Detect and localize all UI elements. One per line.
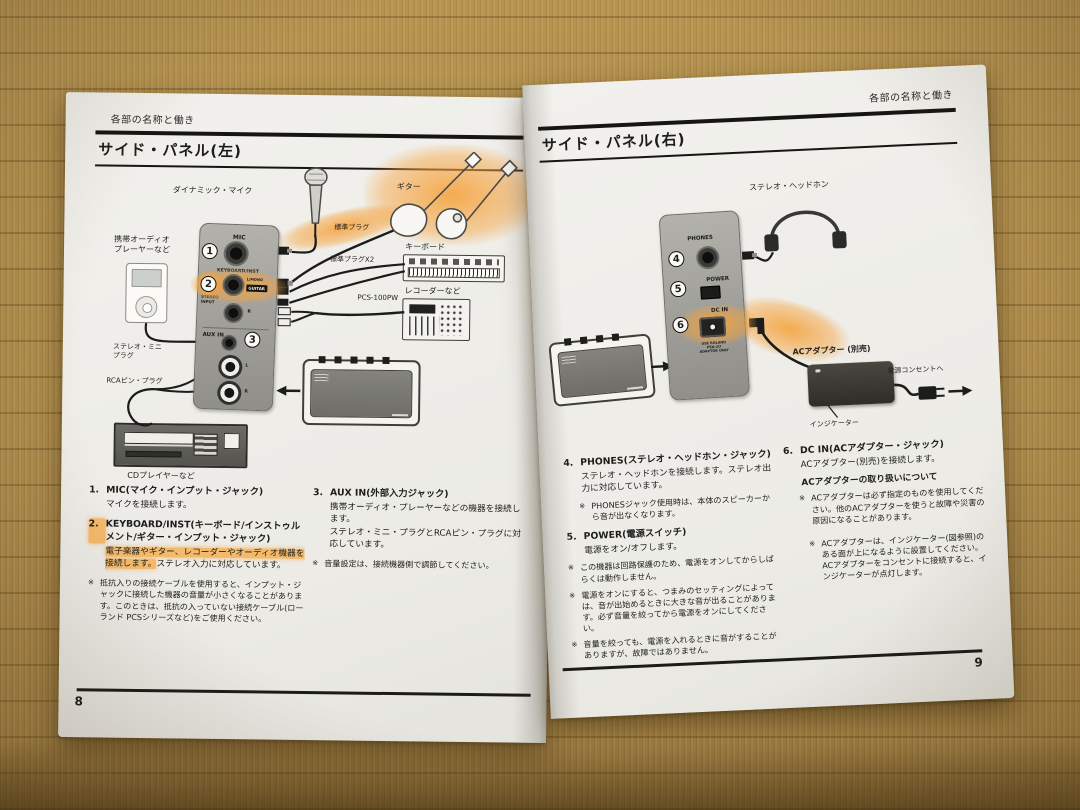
section-3-title: AUX IN(外部入力ジャック)	[330, 487, 525, 502]
left-side-panel-drawing: MIC 1 KEYBOARD/INST 2 L/MONO GUITAR STER…	[193, 223, 280, 412]
section-2-body: ステレオ入力に対応しています。	[156, 559, 285, 571]
page-number-right: 9	[974, 655, 983, 669]
footnote-adapter-2: ※ACアダプターは、インジケーター(図参照)のある面が上になるように設置してくだ…	[809, 531, 989, 584]
power-label: POWER	[694, 275, 742, 284]
guitar-label: ギター	[397, 182, 421, 192]
footnote-text: ACアダプターは、インジケーター(図参照)のある面が上になるように設置してくださ…	[821, 531, 989, 583]
footnote-text: 電源をオンにすると、つまみのセッティングによっては、音が出始めるときに大きな音が…	[581, 581, 783, 635]
guitars-drawing	[379, 151, 535, 241]
footnote-volume: ※ 音量設定は、接続機器側で調節してください。	[312, 558, 524, 572]
mixer-drawing	[402, 298, 471, 341]
aux-rca-jack-r	[217, 380, 242, 405]
footnote-adapter-1: ※ACアダプターは必ず指定のものを使用してください。他のACアダプターを使うと故…	[799, 485, 986, 527]
breadcrumb: 各部の名称と働き	[869, 86, 954, 105]
mixer-faders	[409, 316, 439, 335]
circled-number-1-text: 1	[206, 245, 213, 256]
circled-number-1: 1	[201, 243, 218, 260]
amp-panel-detail	[314, 373, 328, 381]
section-2-title: KEYBOARD/INST(キーボード/インストゥルメント/ギター・インプット・…	[105, 519, 308, 546]
cd-window	[224, 433, 240, 449]
cd-player-drawing	[113, 423, 248, 469]
stereo-mini-plug-label: ステレオ・ミニ プラグ	[113, 343, 162, 361]
footnote-text: 音量を絞っても、電源を入れるときに音がすることがありますが、故障ではありません。	[583, 631, 784, 662]
rca-l-label: L	[245, 364, 248, 369]
aux-mini-jack	[221, 335, 238, 352]
player-click-wheel	[135, 296, 157, 318]
amp-panel-detail	[562, 355, 577, 364]
note-mark-icon: ※	[87, 578, 100, 623]
section-4-number: 4.	[563, 457, 581, 470]
section-aux-in: 3.AUX IN(外部入力ジャック) 携帯オーディオ・プレーヤーなどの機器を接続…	[312, 487, 525, 553]
section-mic: 1.MIC(マイク・インプット・ジャック) マイクを接続します。	[89, 484, 309, 513]
standard-plug-x2-label: 標準プラグX2	[330, 255, 374, 264]
footnote-resistor-cable: ※ 抵抗入りの接続ケーブルを使用すると、インプット・ジャックに接続した機器の音量…	[87, 578, 308, 625]
aux-rca-jack-l	[218, 354, 243, 379]
section-1-number: 1.	[89, 484, 106, 496]
section-power: 5.POWER(電源スイッチ) 電源をオン/オフします。 ※この機器は回路保護の…	[566, 522, 784, 662]
circled-number-4: 4	[668, 251, 685, 268]
cd-buttons	[194, 434, 218, 456]
left-text-column-1: 1.MIC(マイク・インプット・ジャック) マイクを接続します。 2.KEYBO…	[87, 484, 309, 625]
note-mark-icon: ※	[579, 500, 592, 523]
recorder-label: レコーダーなど	[404, 286, 460, 297]
adaptor-only-note: USE ROLAND PSA-1U ADAPTOR ONLY	[692, 340, 737, 355]
section-2-number: 2.	[88, 519, 105, 544]
power-switch	[700, 285, 721, 299]
section-3-number: 3.	[313, 487, 330, 499]
footnote-phones: ※PHONESジャック使用時は、本体のスピーカーから音が出なくなります。	[579, 492, 778, 523]
left-text-column-2: 3.AUX IN(外部入力ジャック) 携帯オーディオ・プレーヤーなどの機器を接続…	[312, 487, 525, 572]
l-mono-label: L/MONO	[247, 278, 263, 283]
keyboard-controls	[409, 258, 499, 265]
note-mark-icon: ※	[568, 563, 581, 586]
dynamic-mic-label: ダイナミック・マイク	[173, 185, 253, 196]
footnote-power-2: ※電源をオンにすると、つまみのセッティングによっては、音が出始めるときに大きな音…	[569, 581, 783, 635]
breadcrumb: 各部の名称と働き	[111, 111, 195, 127]
pcs-cable-label: PCS-100PW	[357, 294, 398, 303]
page-number-left: 8	[74, 694, 83, 708]
note-mark-icon: ※	[312, 558, 324, 569]
section-6-subhead: ACアダプターの取り扱いについて	[801, 467, 984, 488]
right-text-column-2: 6.DC IN(ACアダプター・ジャック) ACアダプター(別売)を接続します。…	[783, 437, 989, 592]
portable-audio-label: 携帯オーディオ プレーヤーなど	[114, 235, 170, 256]
guitar-tag-label: GUITAR	[246, 285, 267, 293]
footnote-text: 抵抗入りの接続ケーブルを使用すると、インプット・ジャックに接続した機器の音量が小…	[99, 578, 308, 625]
cd-player-label: CDプレイヤーなど	[127, 471, 195, 482]
right-side-panel-drawing: PHONES 4 POWER 5 DC IN 6 USE ROLAND PSA-…	[659, 210, 751, 401]
standard-plug-label: 標準プラグ	[334, 223, 369, 232]
footnote-text: ACアダプターは必ず指定のものを使用してください。他のACアダプターを使うと故障…	[811, 485, 986, 526]
section-phones: 4.PHONES(ステレオ・ヘッドホン・ジャック) ステレオ・ヘッドホンを接続し…	[563, 448, 778, 523]
section-keyboard-inst: 2.KEYBOARD/INST(キーボード/インストゥルメント/ギター・インプッ…	[88, 519, 309, 573]
circled-number-5: 5	[670, 281, 687, 298]
outlet-label: 電源コンセントへ	[887, 365, 943, 376]
mixer-knobs	[440, 305, 464, 336]
phones-label: PHONES	[661, 233, 739, 244]
dynamic-microphone-drawing	[300, 167, 331, 229]
amp-logo	[392, 414, 408, 416]
note-mark-icon: ※	[571, 640, 584, 663]
headphones-label: ステレオ・ヘッドホン	[749, 180, 829, 194]
keyboard-inst-jack-r	[223, 303, 244, 324]
cd-display	[126, 451, 182, 458]
keyboard-keys	[408, 267, 500, 278]
section-1-title: MIC(マイク・インプット・ジャック)	[106, 485, 309, 500]
right-text-column-1: 4.PHONES(ステレオ・ヘッドホン・ジャック) ステレオ・ヘッドホンを接続し…	[563, 448, 784, 670]
left-footer-rule	[77, 688, 531, 697]
cd-tray	[124, 432, 194, 445]
circled-number-2-text: 2	[205, 278, 212, 289]
dc-in-jack	[699, 316, 726, 338]
rca-pin-plug-label: RCAピン・プラグ	[106, 377, 162, 386]
circled-number-4-text: 4	[673, 253, 681, 264]
footnote-text: この機器は回路保護のため、電源をオンしてからしばらくは動作しません。	[580, 554, 781, 585]
player-screen	[132, 269, 162, 287]
amp-knobs	[564, 333, 624, 346]
section-1-body: マイクを接続します。	[106, 499, 309, 514]
circled-number-5-text: 5	[674, 283, 682, 294]
page-right: 各部の名称と働き サイド・パネル(右) ステレオ・ヘッドホン PHONES 4 …	[522, 64, 1014, 718]
ac-adapter-drawing	[807, 361, 895, 407]
footnote-power-1: ※この機器は回路保護のため、電源をオンしてからしばらくは動作しません。	[568, 554, 781, 586]
page-left: 各部の名称と働き サイド・パネル(左)	[58, 92, 554, 743]
portable-player-drawing	[125, 263, 168, 324]
indicator-label: インジケーター	[810, 419, 859, 430]
amplifier-drawing-right	[548, 333, 656, 407]
amp-grille	[557, 344, 647, 398]
footnote-text: PHONESジャック使用時は、本体のスピーカーから音が出なくなります。	[591, 492, 778, 523]
amplifier-drawing-left	[302, 359, 421, 426]
circled-number-6-text: 6	[677, 319, 685, 330]
section-5-number: 5.	[566, 531, 584, 544]
ac-adapter-label: ACアダプター (別売)	[792, 344, 871, 358]
circled-number-3-text: 3	[249, 334, 256, 345]
section-3-body: 携帯オーディオ・プレーヤーなどの機器を接続します。 ステレオ・ミニ・プラグとRC…	[329, 502, 525, 553]
amp-knobs	[319, 356, 395, 364]
footnote-text: 音量設定は、接続機器側で調節してください。	[324, 558, 494, 571]
section-dc-in: 6.DC IN(ACアダプター・ジャック) ACアダプター(別売)を接続します。…	[783, 437, 989, 584]
section-6-number: 6.	[783, 445, 801, 458]
rca-r-label: R	[244, 390, 248, 395]
circled-number-3: 3	[244, 331, 261, 348]
tatami-floor-shadow	[0, 740, 1080, 810]
page-title: サイド・パネル(右)	[538, 108, 957, 163]
mic-jack	[223, 241, 249, 267]
footnote-power-3: ※音量を絞っても、電源を入れるときに音がすることがありますが、故障ではありません…	[571, 631, 784, 663]
jack-r-label: R	[247, 310, 251, 315]
phones-jack	[696, 245, 720, 269]
mixer-display	[409, 304, 435, 313]
aux-in-label: AUX IN	[202, 332, 224, 339]
keyboard-drawing	[403, 254, 505, 282]
panel-divider	[203, 327, 269, 331]
headphones-drawing	[759, 193, 850, 255]
